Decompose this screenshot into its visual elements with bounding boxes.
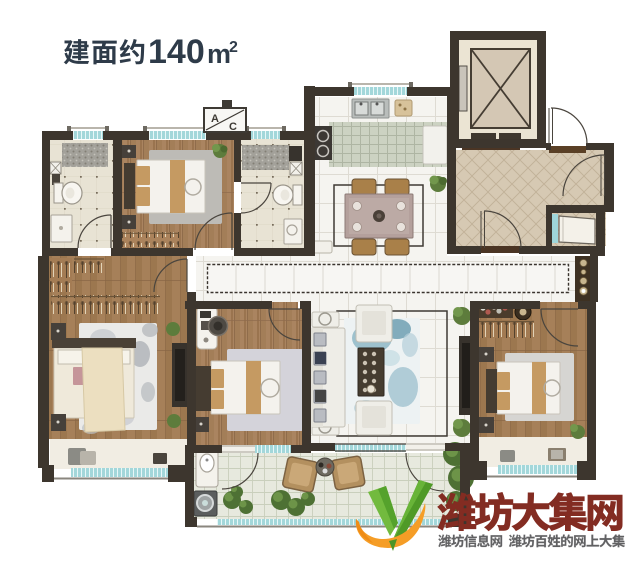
svg-text:C: C	[229, 121, 237, 133]
svg-text:2: 2	[229, 39, 238, 56]
svg-text:140: 140	[148, 33, 205, 71]
svg-text:A: A	[211, 113, 219, 125]
svg-text:m: m	[207, 39, 231, 69]
